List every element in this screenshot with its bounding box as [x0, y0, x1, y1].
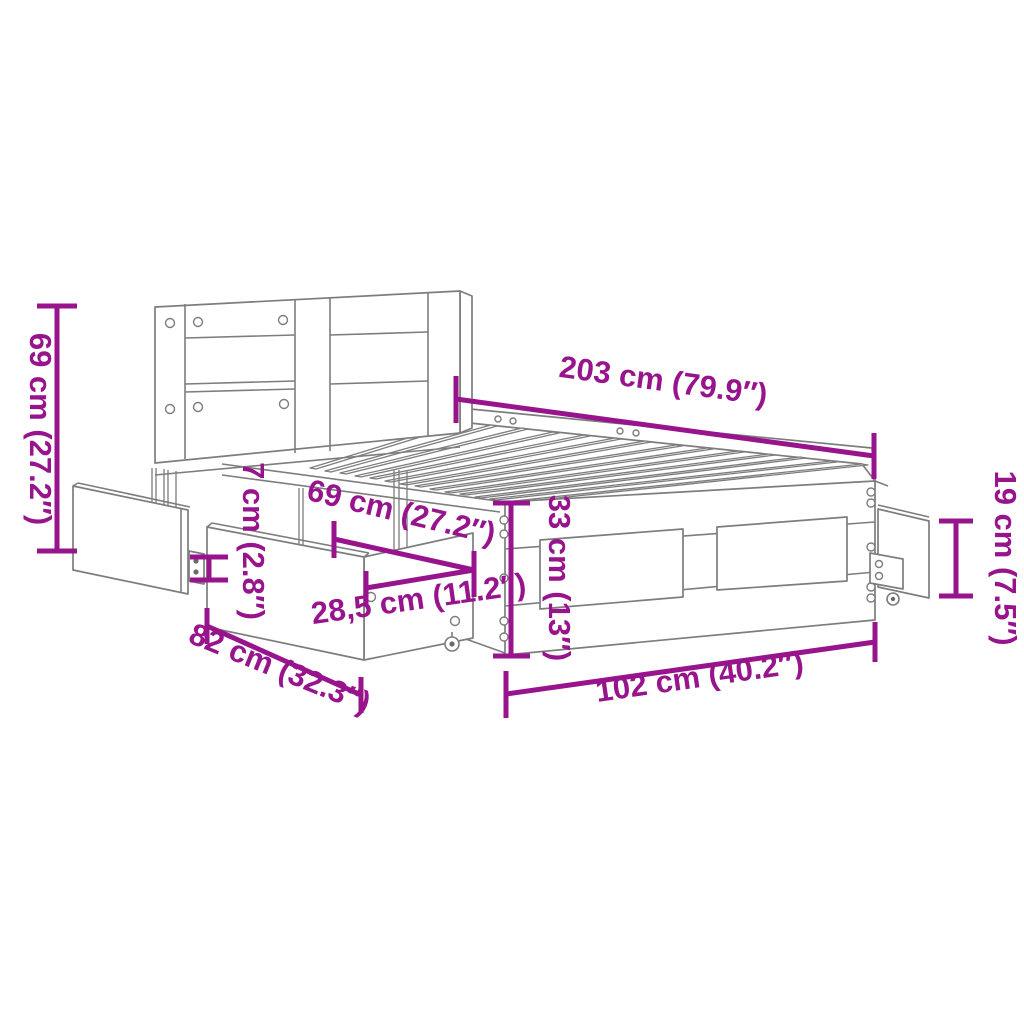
dimension-label-total-length: 203 cm (79.9″): [557, 349, 769, 412]
right-drawer-bracket: [870, 553, 903, 589]
dimension-label-frame-height: 33 cm (13″): [542, 495, 577, 662]
dimension-label-floor-clearance: 7 cm (2.8″): [236, 462, 271, 620]
diagram-canvas: 69 cm (27.2″) 203 cm (79.9″) 7 cm (2.8″)…: [0, 0, 1024, 1024]
right-drawer: [870, 481, 929, 605]
foot-recessed-panel-right: [717, 517, 847, 590]
headboard-side: [460, 291, 472, 433]
dimension-label-side-drawer-height: 19 cm (7.5″): [988, 470, 1023, 645]
dimension-label-headboard-height: 69 cm (27.2″): [23, 333, 58, 525]
bed-dimension-diagram: 69 cm (27.2″) 203 cm (79.9″) 7 cm (2.8″)…: [0, 0, 1024, 1024]
headboard-front: [155, 291, 460, 463]
dimension-headboard-height: 69 cm (27.2″): [23, 306, 77, 551]
dimension-label-total-width: 102 cm (40.2″): [593, 644, 805, 709]
dimension-side-drawer-height: 19 cm (7.5″): [939, 470, 1023, 645]
left-drawer: [73, 483, 190, 594]
headboard: [155, 291, 472, 475]
